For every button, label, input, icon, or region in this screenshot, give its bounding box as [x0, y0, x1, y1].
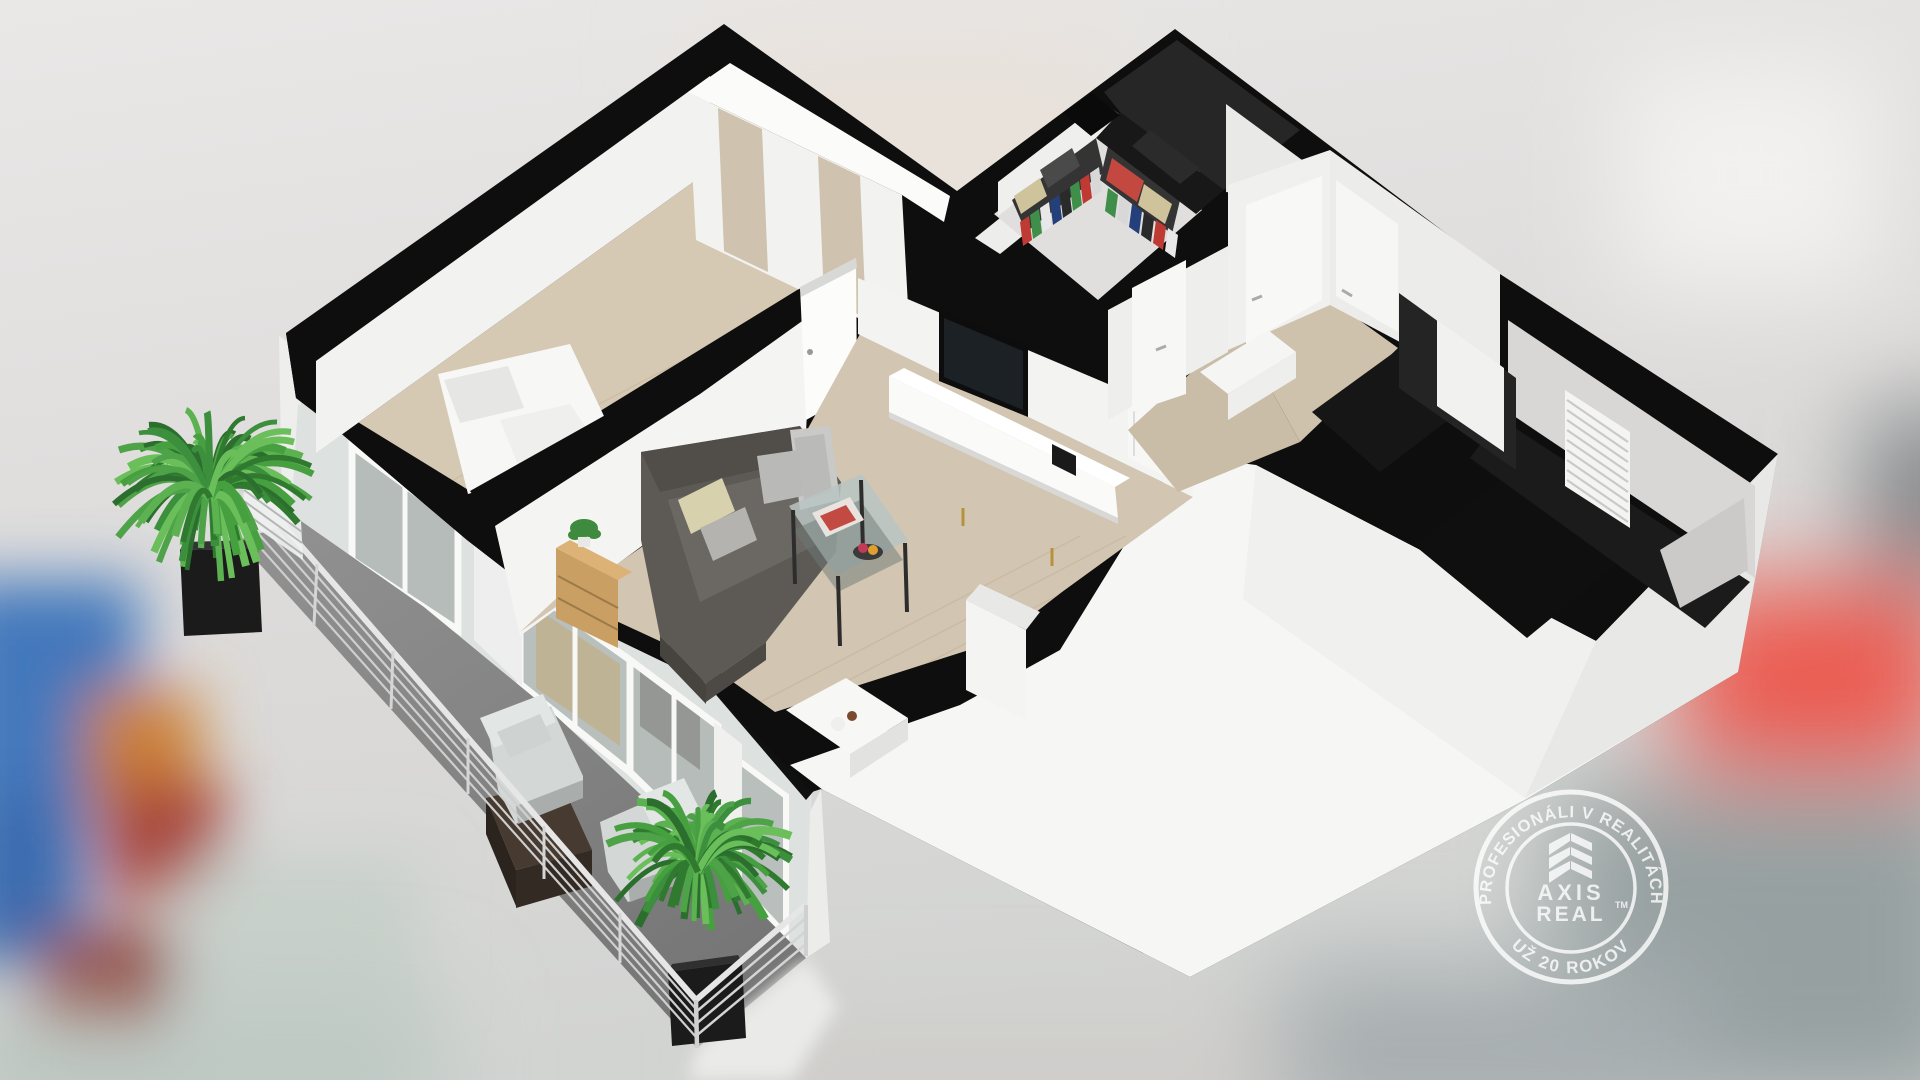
svg-text:TM: TM	[1615, 900, 1628, 910]
svg-text:REAL: REAL	[1536, 903, 1605, 926]
svg-text:AXIS: AXIS	[1537, 880, 1604, 905]
